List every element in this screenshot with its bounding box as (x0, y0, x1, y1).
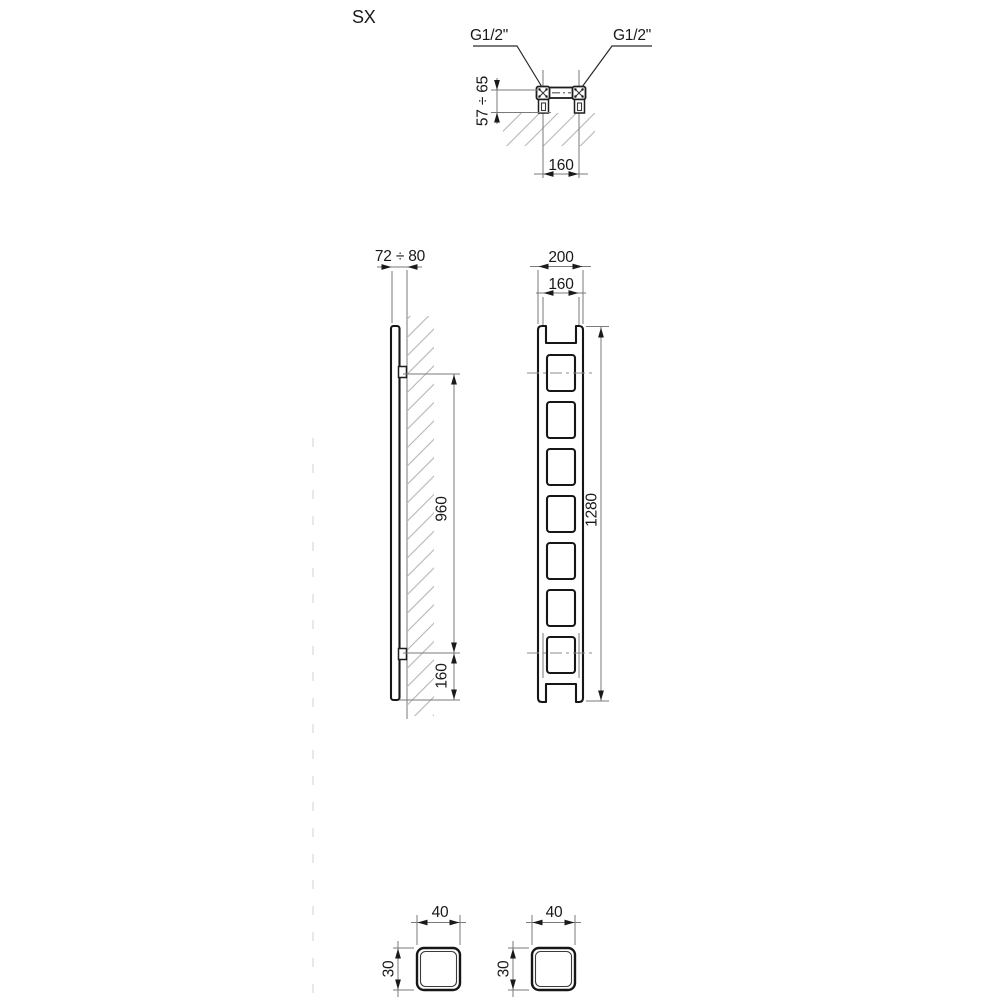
technical-drawing-page: SX (0, 0, 1000, 1000)
rung-opening (547, 543, 575, 579)
dimension-overall-height: 1280 (583, 327, 609, 702)
model-label: SX (352, 7, 376, 27)
dim-text-section-width-left: 40 (432, 904, 449, 921)
pipe-fitting-right (573, 87, 586, 100)
dim-text-overall-height: 1280 (583, 493, 600, 527)
front-view: 200 160 1 (527, 249, 609, 702)
radiator-dimension-drawing: SX (0, 0, 1000, 1000)
connection-size-label-right: G1/2" (613, 27, 651, 44)
connection-size-label-left: G1/2" (470, 27, 508, 44)
wall-hatch-side-view (407, 316, 434, 716)
dim-text-connection-spacing-front: 160 (548, 276, 574, 293)
wall-bracket-lower-side-view (399, 649, 407, 660)
radiator-side-profile (391, 326, 400, 700)
rung-opening (547, 402, 575, 438)
cross-section-right: 40 30 (495, 904, 581, 997)
dim-text-section-height-left: 30 (380, 960, 397, 977)
dim-text-depth: 72 ÷ 80 (375, 248, 426, 265)
rung-opening (547, 637, 575, 673)
dim-text-connection-spacing-top: 160 (548, 157, 574, 174)
dim-text-wall-clearance: 57 ÷ 65 (474, 76, 491, 126)
cross-section-left: 40 30 (380, 904, 466, 997)
dim-text-section-height-right: 30 (495, 960, 512, 977)
side-view: 72 ÷ 80 960 160 (375, 248, 460, 719)
tube-profile-right (532, 948, 575, 990)
top-view: SX (352, 7, 652, 178)
dimension-depth: 72 ÷ 80 (375, 248, 426, 323)
dimension-connection-spacing-top: 160 (534, 157, 588, 174)
wall-bracket-upper-side-view (399, 367, 407, 378)
dimension-bracket-bottom-offset: 160 (433, 653, 454, 700)
tube-profile-left (417, 948, 460, 990)
dim-text-section-width-right: 40 (546, 904, 563, 921)
rung-opening (547, 449, 575, 485)
rung-opening (547, 496, 575, 532)
dim-text-bracket-spacing: 960 (433, 496, 450, 522)
dimension-bracket-spacing: 960 (433, 374, 454, 653)
rung-opening (547, 590, 575, 626)
wall-hatch-top-view (503, 113, 595, 146)
wall-bracket-right-top-view (575, 100, 585, 114)
pipe-fitting-left (537, 87, 550, 100)
cross-sections: 40 30 40 30 (380, 904, 581, 997)
wall-bracket-left-top-view (539, 100, 549, 114)
leader-line-right (582, 46, 652, 87)
dim-text-bracket-bottom-offset: 160 (433, 663, 450, 689)
dim-text-overall-width: 200 (548, 249, 574, 266)
